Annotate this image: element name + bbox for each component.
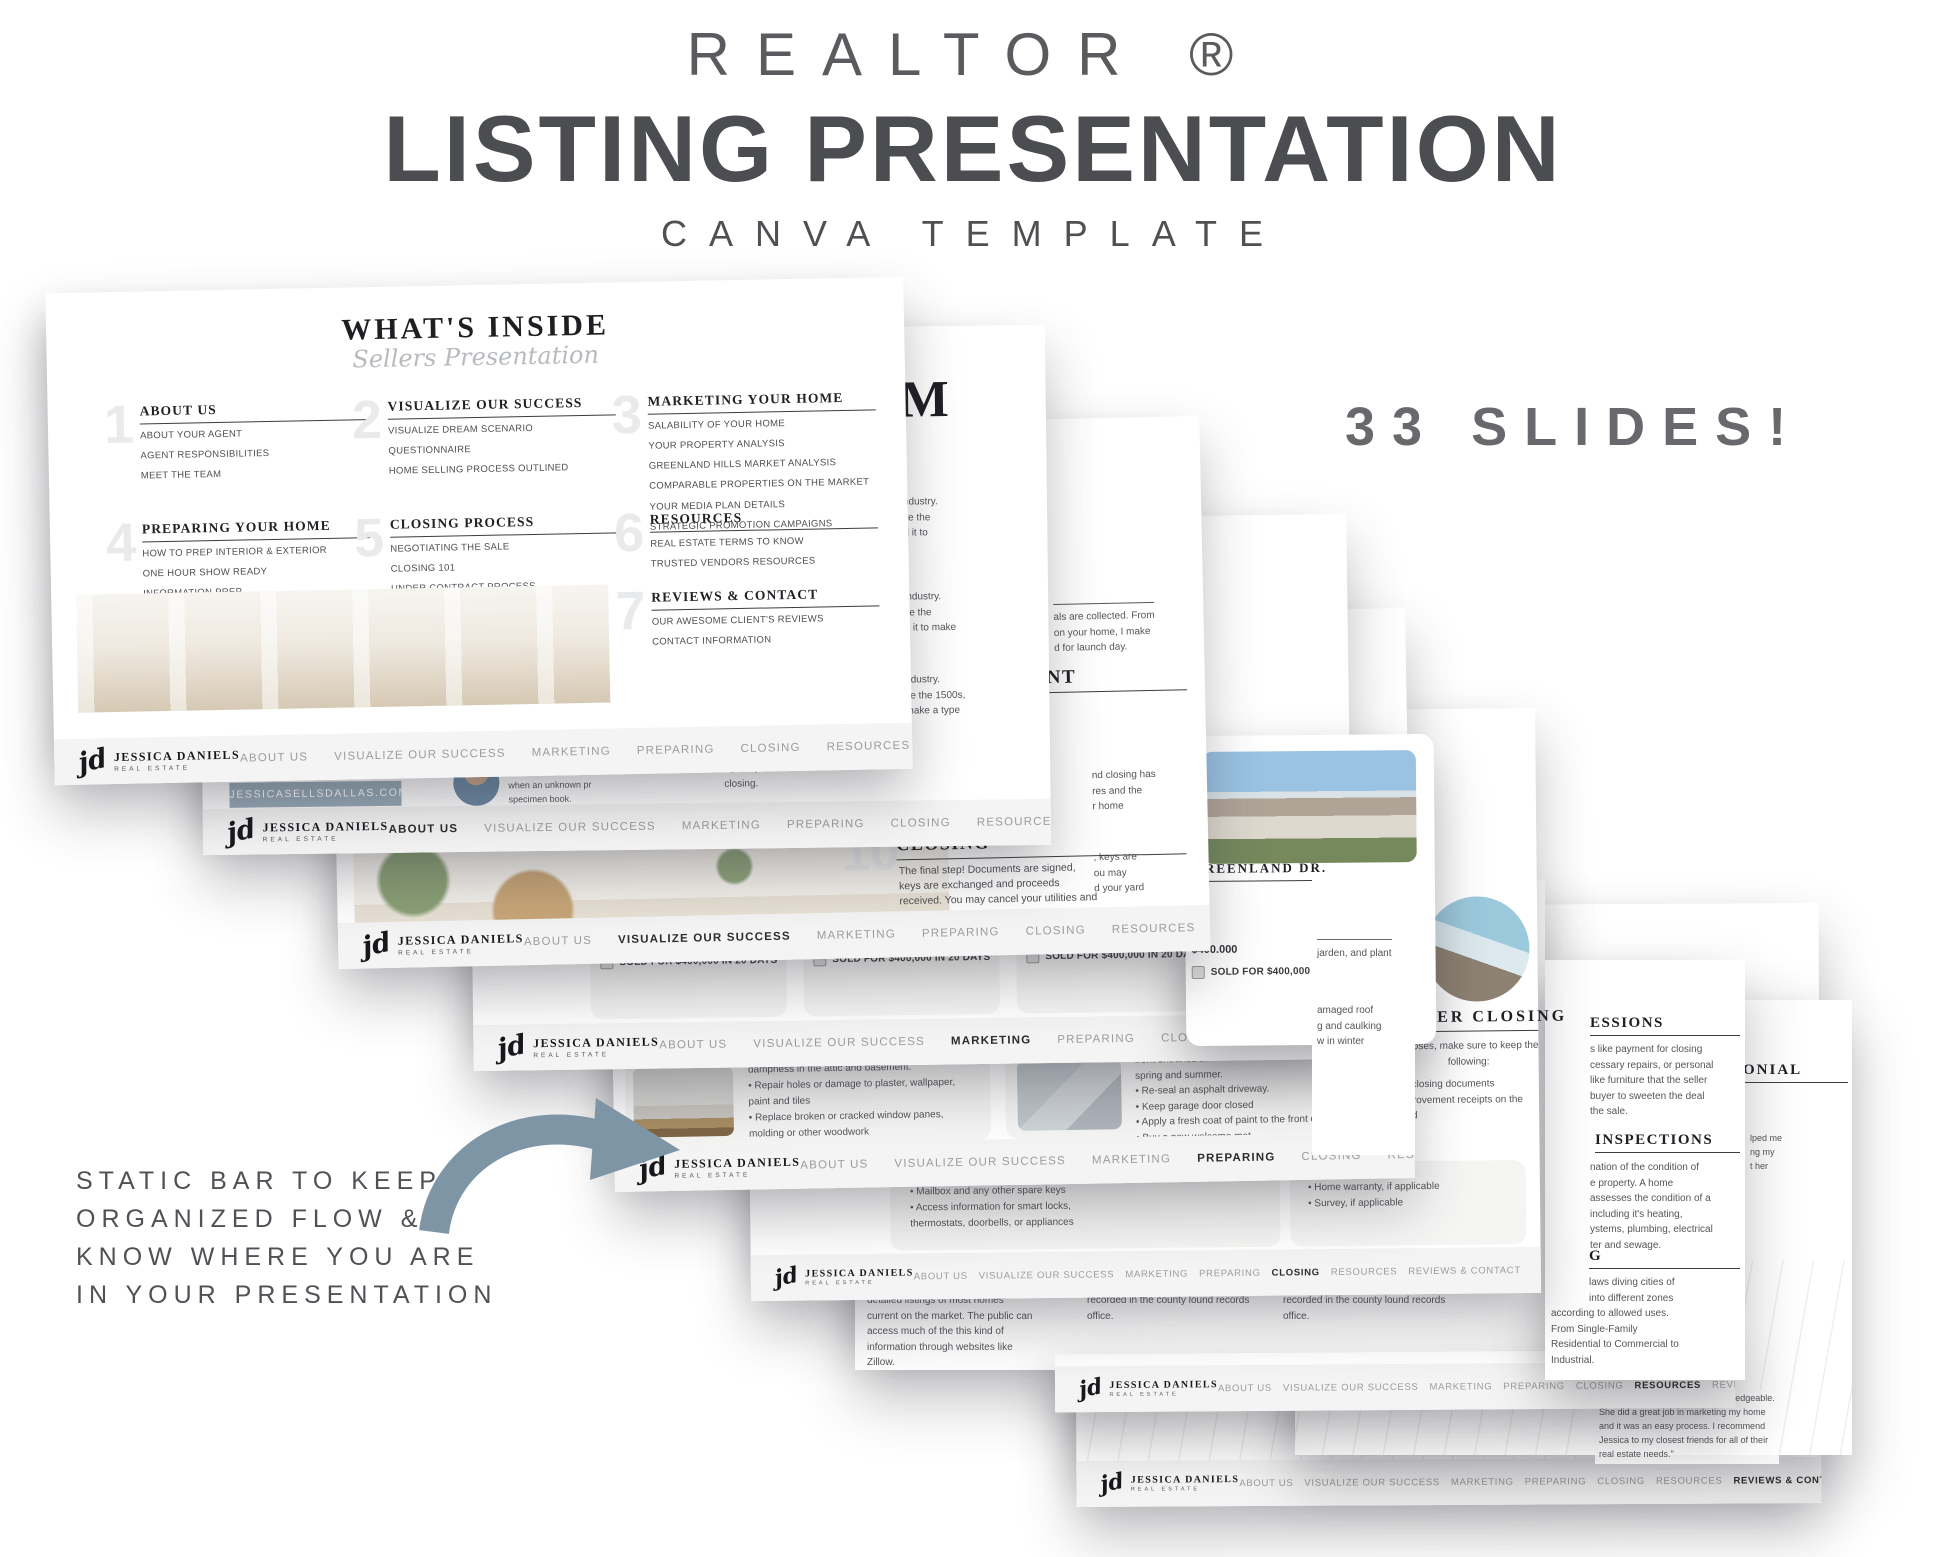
- section-resources: 6 RESOURCES REAL ESTATE TERMS TO KNOW TR…: [650, 507, 879, 573]
- annotation-line: IN YOUR PRESENTATION: [76, 1276, 497, 1314]
- logo-sub: REAL ESTATE: [805, 1279, 914, 1286]
- page-title: LISTING PRESENTATION: [0, 95, 1946, 203]
- nav-visualize[interactable]: VISUALIZE OUR SUCCESS: [979, 1269, 1115, 1281]
- nav-preparing[interactable]: PREPARING: [1199, 1267, 1261, 1279]
- nav-visualize[interactable]: VISUALIZE OUR SUCCESS: [1304, 1477, 1440, 1489]
- step-fragment: nd closing hasres and ther home: [1092, 767, 1157, 815]
- nav-visualize[interactable]: VISUALIZE OUR SUCCESS: [484, 821, 656, 835]
- section-title: MARKETING YOUR HOME: [647, 389, 875, 414]
- logo-sub: REAL ESTATE: [674, 1170, 800, 1179]
- brand-logo: jd JESSICA DANIELS REAL ESTATE: [227, 818, 389, 843]
- slide-right-column-peek: ESSIONS s like payment for closingcessar…: [1545, 960, 1745, 1380]
- nav-marketing[interactable]: MARKETING: [817, 928, 896, 942]
- logo-sub: REAL ESTATE: [263, 834, 389, 843]
- logo-name: JESSICA DANIELS: [1131, 1474, 1240, 1486]
- slide2-title-fragment: M: [899, 370, 950, 430]
- website-button[interactable]: JESSICASELLSDALLAS.COM: [229, 781, 401, 808]
- nav-resources[interactable]: RESOURCES: [1331, 1266, 1398, 1278]
- section-about-us: 1 ABOUT US ABOUT YOUR AGENT AGENT RESPON…: [139, 399, 369, 485]
- nav-closing[interactable]: CLOSING: [740, 742, 800, 755]
- lorem-fragment: industry.ce thed it to make: [904, 589, 956, 636]
- logo-script: jd: [225, 818, 257, 845]
- section-number: 4: [106, 512, 137, 575]
- nav-about-us[interactable]: ABOUT US: [524, 935, 592, 948]
- nav-about-us[interactable]: ABOUT US: [240, 751, 308, 764]
- nav-preparing[interactable]: PREPARING: [1197, 1151, 1276, 1164]
- section-number: 2: [351, 389, 382, 452]
- nav-about-us[interactable]: ABOUT US: [659, 1039, 727, 1052]
- section-reviews: 7 REVIEWS & CONTACT OUR AWESOME CLIENT'S…: [651, 585, 880, 651]
- step-fragment: als are collected. Fromon your home, I m…: [1053, 602, 1155, 657]
- keys-checklist: • Mailbox and any other spare keys• Acce…: [910, 1183, 1074, 1233]
- nav-reviews[interactable]: REVIEWS & CONTACT: [1408, 1265, 1521, 1277]
- nav-closing[interactable]: CLOSING: [1272, 1267, 1320, 1279]
- nav-visualize[interactable]: VISUALIZE OUR SUCCESS: [618, 931, 791, 947]
- static-nav-bar: jd JESSICA DANIELS REAL ESTATE ABOUT US …: [751, 1247, 1541, 1301]
- zoning-heading: G: [1589, 1248, 1740, 1269]
- nav-closing[interactable]: CLOSING: [891, 817, 951, 830]
- nav-resources[interactable]: RESOURCES: [1656, 1475, 1723, 1486]
- logo-name: JESSICA DANIELS: [398, 931, 524, 949]
- nav-preparing[interactable]: PREPARING: [1503, 1380, 1565, 1391]
- nav-visualize[interactable]: VISUALIZE OUR SUCCESS: [894, 1155, 1066, 1170]
- section-number: 1: [103, 394, 134, 457]
- nav-preparing[interactable]: PREPARING: [1057, 1033, 1135, 1046]
- logo-script: jd: [496, 1034, 528, 1061]
- nav-marketing[interactable]: MARKETING: [682, 819, 761, 832]
- logo-sub: REAL ESTATE: [1131, 1486, 1240, 1493]
- lorem-fragment: ndustry.ce the 1500s,make a type: [905, 672, 966, 719]
- static-nav-bar: jd JESSICA DANIELS REAL ESTATE ABOUT US …: [1076, 1457, 1821, 1507]
- nav-preparing[interactable]: PREPARING: [637, 744, 715, 757]
- logo-script: jd: [1099, 1473, 1125, 1494]
- nav-resources[interactable]: RESOURCES: [1634, 1379, 1701, 1390]
- interior-checklist: dampness in the attic and basement.• Rep…: [748, 1059, 956, 1143]
- section-visualize: 2 VISUALIZE OUR SUCCESS VISUALIZE DREAM …: [387, 394, 617, 480]
- logo-name: JESSICA DANIELS: [533, 1034, 659, 1051]
- nav-about-us[interactable]: ABOUT US: [914, 1270, 968, 1282]
- slide-preparing-peek: jarden, and plant amaged roofg and caulk…: [1312, 875, 1415, 1155]
- nav-visualize[interactable]: VISUALIZE OUR SUCCESS: [1283, 1381, 1419, 1393]
- logo-sub: REAL ESTATE: [114, 763, 240, 772]
- inspections-text: nation of the condition ofe property. A …: [1590, 1160, 1713, 1253]
- section-number: 7: [615, 580, 646, 643]
- nav-about-us[interactable]: ABOUT US: [389, 823, 459, 836]
- nav-preparing[interactable]: PREPARING: [922, 926, 1000, 940]
- section-title: REVIEWS & CONTACT: [651, 585, 879, 610]
- living-room-photo: [76, 585, 610, 713]
- impressions-heading: ESSIONS: [1590, 1015, 1740, 1036]
- section-number: 6: [613, 502, 644, 565]
- nav-preparing[interactable]: PREPARING: [787, 818, 865, 831]
- curved-arrow-icon: [418, 1092, 688, 1247]
- nav-marketing[interactable]: MARKETING: [1429, 1381, 1492, 1392]
- documents-photo: [1424, 896, 1530, 1002]
- brand-logo: jd JESSICA DANIELS REAL ESTATE: [497, 1034, 659, 1059]
- section-title: PREPARING YOUR HOME: [142, 517, 370, 542]
- header-realtor-line: REALTOR ®: [0, 20, 1946, 89]
- section-title: VISUALIZE OUR SUCCESS: [387, 394, 615, 419]
- slide-count-badge: 33 SLIDES!: [1345, 396, 1803, 458]
- logo-name: JESSICA DANIELS: [262, 818, 388, 835]
- logo-sub: REAL ESTATE: [1109, 1391, 1218, 1398]
- warranty-checklist: • Home warranty, if applicable• Survey, …: [1308, 1179, 1440, 1212]
- brand-logo: jd JESSICA DANIELS REAL ESTATE: [1079, 1379, 1218, 1398]
- page-subtitle: CANVA TEMPLATE: [0, 213, 1946, 255]
- nav-about-us[interactable]: ABOUT US: [1239, 1477, 1293, 1488]
- resources-col-records: recorded in the county lound recordsoffi…: [1283, 1293, 1445, 1324]
- brand-logo: jd JESSICA DANIELS REAL ESTATE: [362, 931, 524, 957]
- logo-name: JESSICA DANIELS: [674, 1154, 800, 1171]
- resources-col-listings: detailed listings of most homescurrent o…: [867, 1293, 1032, 1371]
- nav-closing[interactable]: CLOSING: [1026, 924, 1086, 937]
- nav-closing[interactable]: CLOSING: [1597, 1475, 1645, 1486]
- sold-tag-icon: [1192, 966, 1205, 979]
- section-number: 3: [611, 384, 642, 447]
- brand-logo: jd JESSICA DANIELS REAL ESTATE: [1100, 1474, 1239, 1493]
- review-fragment: lped meng myt her: [1750, 1132, 1782, 1174]
- page-header: REALTOR ® LISTING PRESENTATION CANVA TEM…: [0, 20, 1946, 255]
- nav-visualize[interactable]: VISUALIZE OUR SUCCESS: [334, 748, 506, 763]
- checklist-fragment: jarden, and plant: [1317, 939, 1392, 962]
- after-closing-items: all closing documentsmprovement receipts…: [1399, 1076, 1523, 1124]
- zoning-text: laws diving cities of into different zon…: [1551, 1275, 1679, 1368]
- logo-name: JESSICA DANIELS: [805, 1267, 914, 1279]
- nav-about-us[interactable]: ABOUT US: [800, 1159, 868, 1172]
- concrete-photo: [1017, 1059, 1122, 1131]
- testimonial-heading: ONIAL: [1743, 1062, 1848, 1083]
- section-title: ABOUT US: [139, 399, 367, 424]
- logo-script: jd: [77, 748, 109, 775]
- section-number: 5: [354, 507, 385, 570]
- section-title: CLOSING PROCESS: [390, 512, 618, 537]
- logo-sub: REAL ESTATE: [533, 1050, 659, 1059]
- nav-marketing[interactable]: MARKETING: [1125, 1268, 1188, 1280]
- logo-name: JESSICA DANIELS: [1109, 1379, 1218, 1391]
- nav-marketing[interactable]: MARKETING: [1451, 1476, 1514, 1487]
- step-heading-fragment: NT: [1047, 664, 1188, 693]
- nav-resources[interactable]: RESOURCES: [977, 816, 1051, 829]
- nav-visualize[interactable]: VISUALIZE OUR SUCCESS: [753, 1036, 925, 1050]
- brand-logo: jd JESSICA DANIELS REAL ESTATE: [78, 747, 240, 773]
- nav-reviews[interactable]: REVIEWS & CONTACT: [1733, 1474, 1821, 1486]
- nav-closing[interactable]: CLOSING: [1576, 1380, 1624, 1391]
- inspections-heading: INSPECTIONS: [1595, 1132, 1740, 1153]
- checklist-fragment: amaged roofg and caulkingw in winter: [1317, 1003, 1382, 1050]
- exterior-checklist: front entrance inspring and summer.• Re-…: [1135, 1049, 1331, 1145]
- resources-col-deed: recorded in the county lound recordsoffi…: [1087, 1293, 1249, 1324]
- nav-resources[interactable]: RESOURCES: [827, 740, 911, 754]
- impressions-text: s like payment for closingcessary repair…: [1590, 1042, 1713, 1120]
- marketing-graphic: REALTOR ® LISTING PRESENTATION CANVA TEM…: [0, 0, 1946, 1557]
- logo-sub: REAL ESTATE: [398, 947, 524, 957]
- step-fragment: , keys areou mayd your yard: [1093, 849, 1144, 897]
- house-photo: [1202, 750, 1417, 864]
- nav-preparing[interactable]: PREPARING: [1525, 1476, 1587, 1487]
- slide-whats-inside: WHAT'S INSIDE Sellers Presentation 1 ABO…: [45, 277, 912, 785]
- logo-script: jd: [1078, 1378, 1104, 1400]
- brand-logo: jd JESSICA DANIELS REAL ESTATE: [775, 1267, 914, 1286]
- logo-script: jd: [773, 1267, 799, 1289]
- nav-resources[interactable]: RESOURCES: [1112, 922, 1196, 936]
- listing-title: GREENLAND DR.: [1193, 860, 1313, 882]
- logo-script: jd: [360, 932, 392, 959]
- nav-about-us[interactable]: ABOUT US: [1218, 1382, 1272, 1393]
- nav-marketing[interactable]: MARKETING: [1092, 1153, 1171, 1166]
- nav-marketing[interactable]: MARKETING: [951, 1034, 1032, 1047]
- section-title: RESOURCES: [650, 507, 878, 532]
- nav-marketing[interactable]: MARKETING: [532, 746, 611, 760]
- nav-reviews[interactable]: REVIEWS & CONTACT: [1712, 1379, 1735, 1391]
- logo-name: JESSICA DANIELS: [114, 747, 240, 764]
